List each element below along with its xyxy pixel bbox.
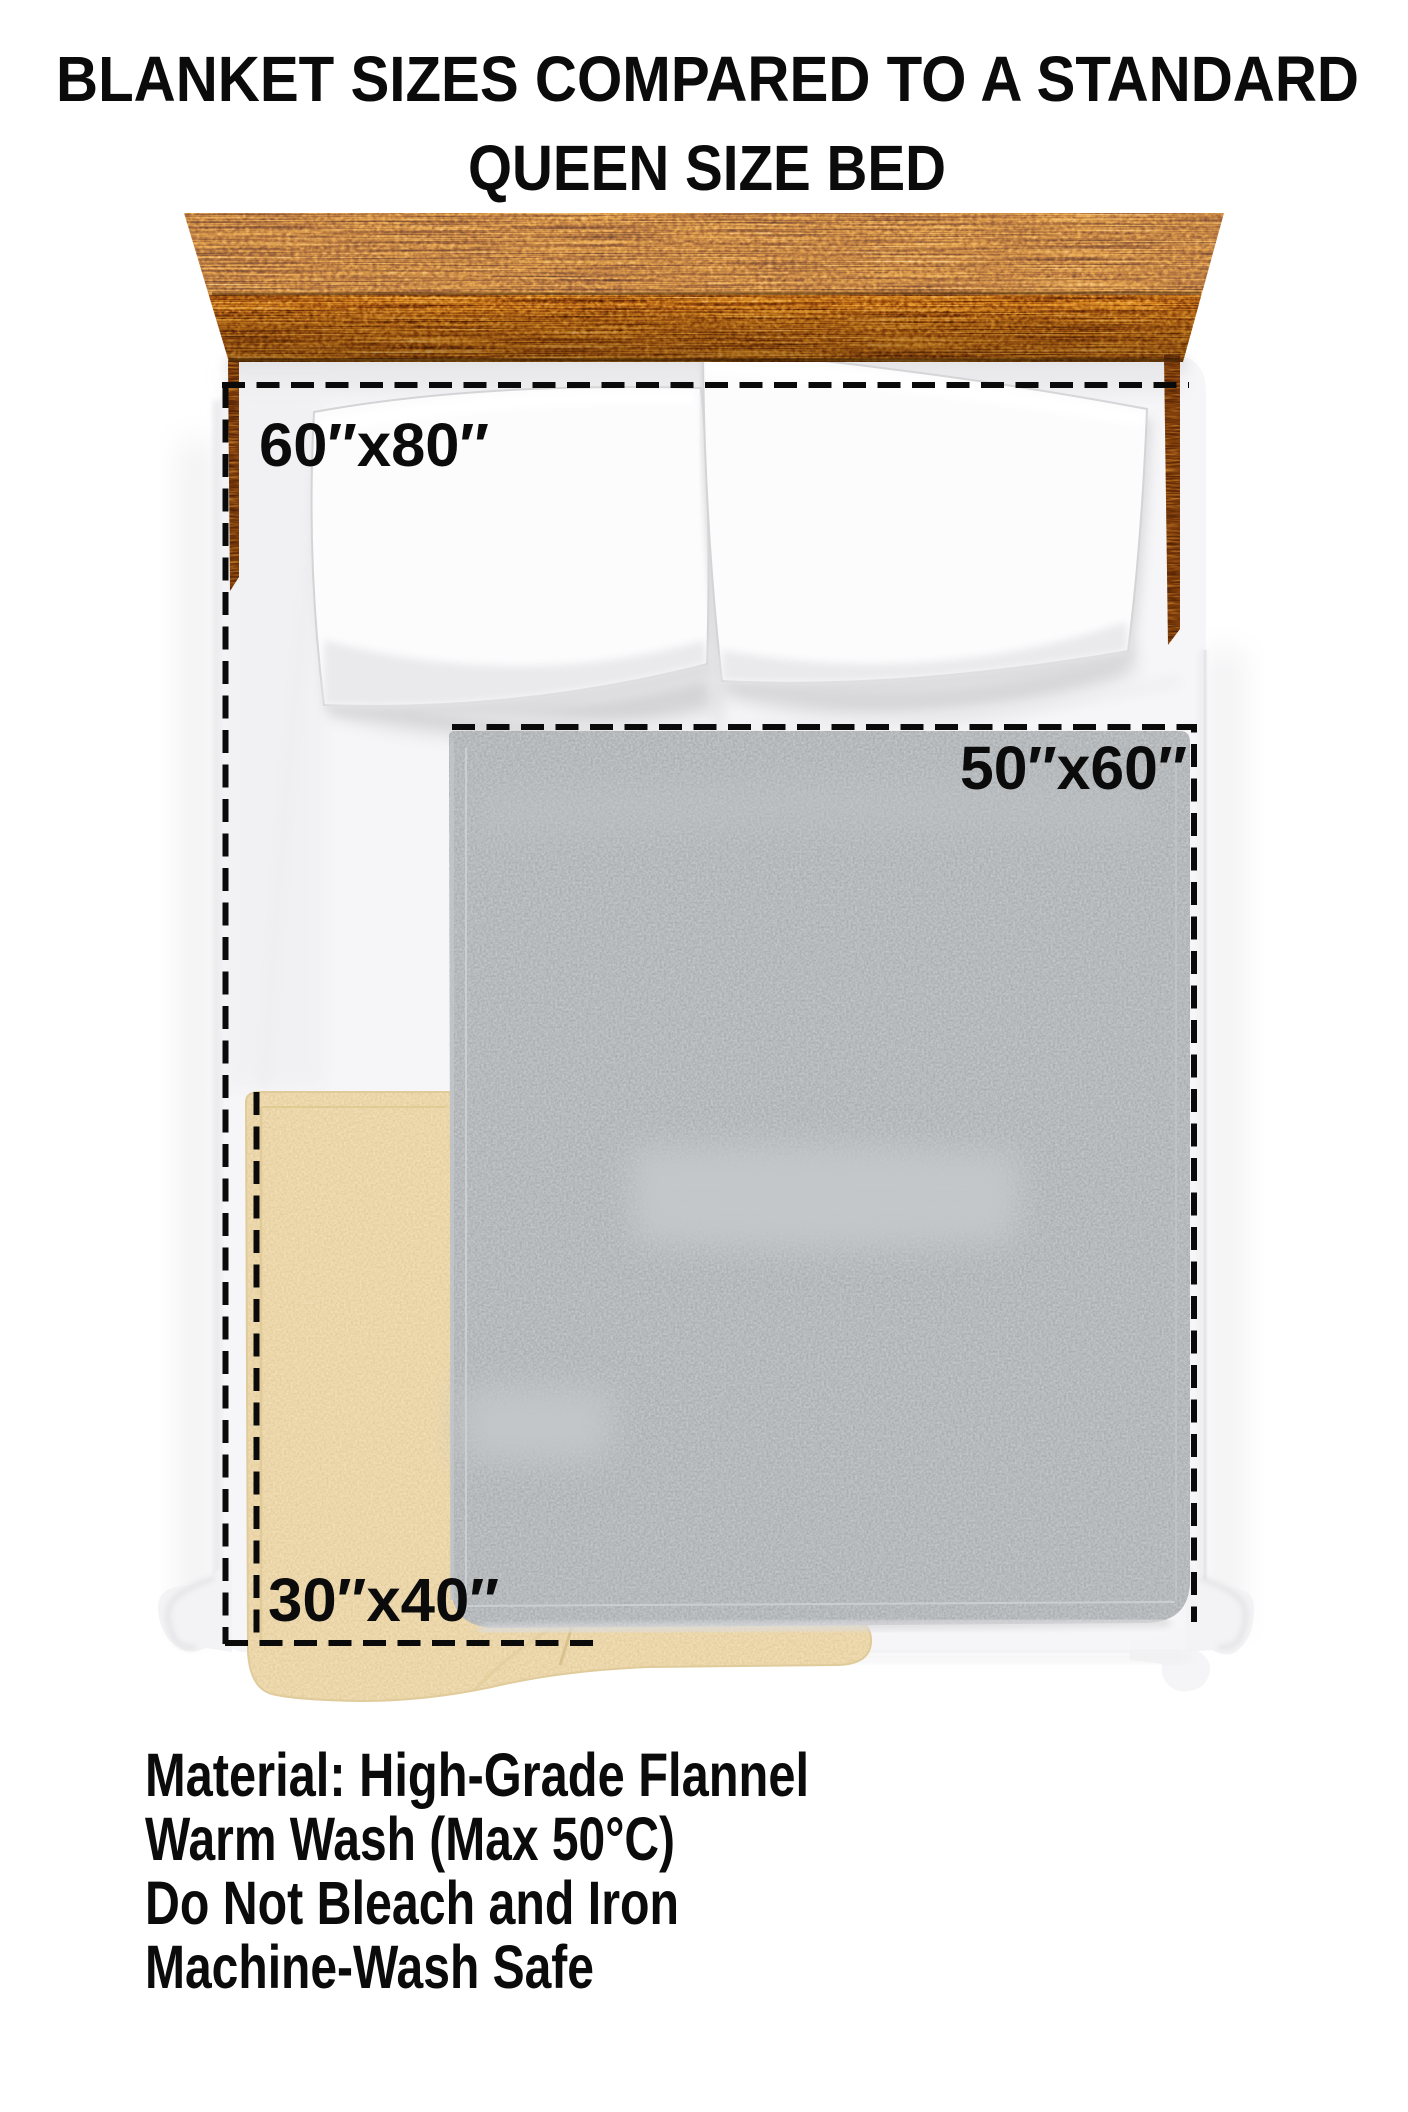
svg-text:Machine-Wash Safe: Machine-Wash Safe [145,1933,594,2001]
svg-text:Do Not Bleach and Iron: Do Not Bleach and Iron [145,1869,679,1937]
svg-text:30′′x40′′: 30′′x40′′ [268,1566,499,1634]
svg-text:BLANKET SIZES COMPARED TO A ST: BLANKET SIZES COMPARED TO A STANDARD [56,43,1359,115]
svg-text:QUEEN SIZE BED: QUEEN SIZE BED [468,132,946,204]
svg-text:60′′x80′′: 60′′x80′′ [259,411,489,479]
svg-text:50′′x60′′: 50′′x60′′ [960,734,1187,802]
svg-text:Warm Wash (Max 50°C): Warm Wash (Max 50°C) [145,1805,675,1873]
svg-text:Material: High-Grade Flannel: Material: High-Grade Flannel [145,1741,809,1809]
